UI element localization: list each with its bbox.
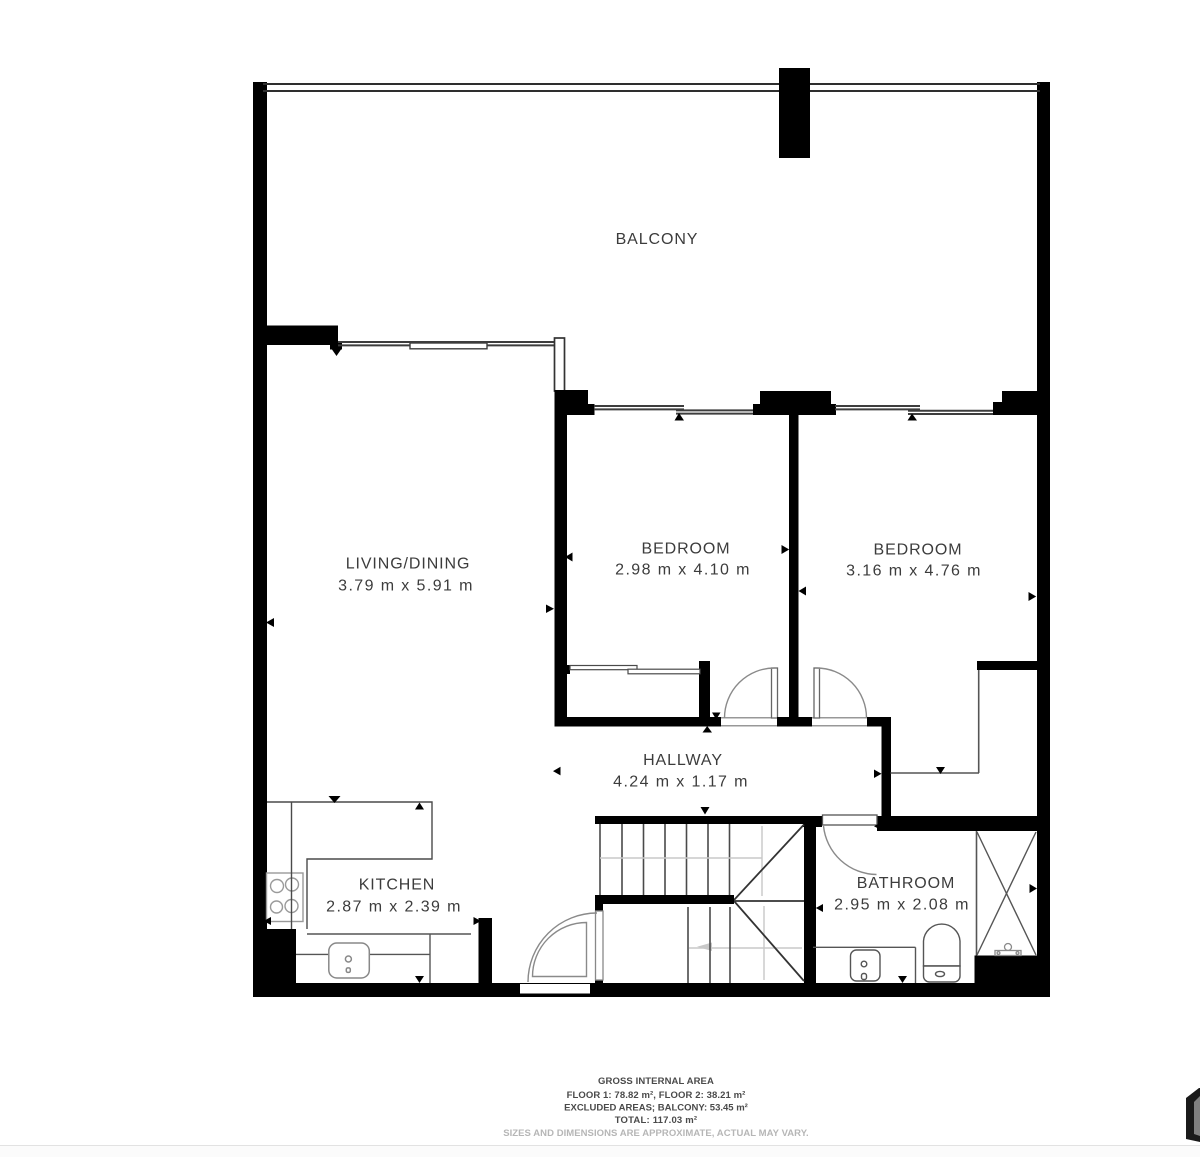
- svg-text:BATHROOM: BATHROOM: [857, 875, 955, 892]
- svg-text:4.24 m x 1.17 m: 4.24 m x 1.17 m: [613, 774, 749, 791]
- svg-text:TOTAL: 117.03 m²: TOTAL: 117.03 m²: [615, 1115, 698, 1126]
- svg-text:KITCHEN: KITCHEN: [359, 877, 436, 894]
- svg-text:BEDROOM: BEDROOM: [874, 542, 963, 559]
- svg-text:FLOOR 1: 78.82 m², FLOOR 2: 38: FLOOR 1: 78.82 m², FLOOR 2: 38.21 m²: [567, 1090, 746, 1101]
- svg-text:2.98 m x 4.10 m: 2.98 m x 4.10 m: [615, 562, 751, 579]
- svg-text:GROSS INTERNAL AREA: GROSS INTERNAL AREA: [598, 1076, 714, 1087]
- svg-text:3.16 m x 4.76 m: 3.16 m x 4.76 m: [846, 563, 982, 580]
- svg-text:3.79 m x 5.91 m: 3.79 m x 5.91 m: [338, 578, 474, 595]
- svg-text:2.95 m x 2.08 m: 2.95 m x 2.08 m: [834, 897, 970, 914]
- svg-text:2.87 m x 2.39 m: 2.87 m x 2.39 m: [326, 899, 462, 916]
- svg-text:HALLWAY: HALLWAY: [643, 752, 723, 769]
- svg-text:SIZES AND DIMENSIONS ARE APPRO: SIZES AND DIMENSIONS ARE APPROXIMATE, AC…: [503, 1128, 809, 1139]
- svg-text:LIVING/DINING: LIVING/DINING: [346, 556, 471, 573]
- svg-text:BEDROOM: BEDROOM: [642, 541, 731, 558]
- svg-text:EXCLUDED AREAS; BALCONY: 53.45: EXCLUDED AREAS; BALCONY: 53.45 m²: [564, 1103, 748, 1114]
- svg-text:BALCONY: BALCONY: [616, 231, 699, 248]
